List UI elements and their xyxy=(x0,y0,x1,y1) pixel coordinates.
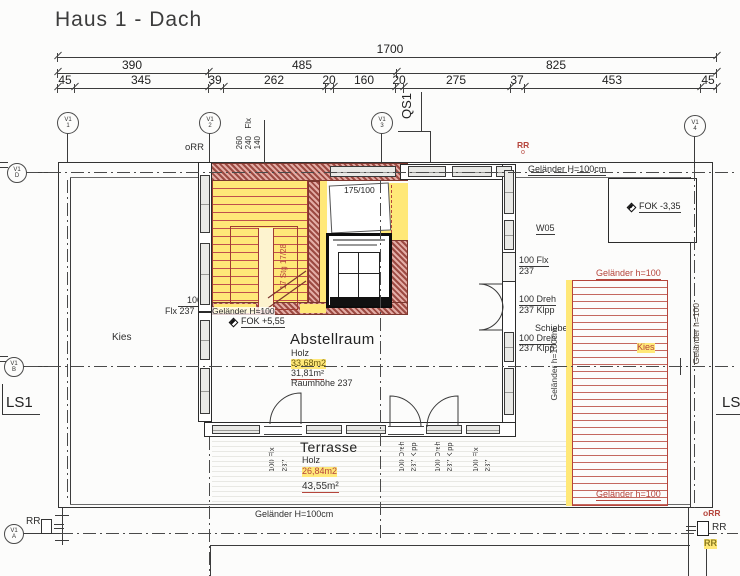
rr-bottom-right-box xyxy=(697,521,709,536)
window-w05-right-label: W05 xyxy=(536,224,555,235)
window-left-2 xyxy=(200,243,210,305)
grid-axis-1 xyxy=(67,180,68,502)
left-flx-label-2: Flx 237 xyxy=(165,307,195,317)
fok-stair-label: FOK +5,55 xyxy=(241,317,285,328)
axis-bubble-top-3: V13 xyxy=(371,112,393,134)
right-flx-label-2: 237 xyxy=(519,267,534,277)
rr-bottom-right-black-label: RR xyxy=(712,522,726,533)
section-ls1-left: LS1 xyxy=(6,395,33,412)
fok-box-label: FOK -3,35 xyxy=(639,202,681,213)
wall-hatch-stair-right xyxy=(308,181,320,312)
grid-axis-b xyxy=(25,366,738,367)
window-left-4 xyxy=(200,368,210,414)
grid-axis-2 xyxy=(209,437,210,576)
window-bottom-1 xyxy=(212,425,260,434)
dim-row3-10: 45 xyxy=(693,73,723,87)
drawing-title: Haus 1 - Dach xyxy=(55,8,202,32)
kies-left-label: Kies xyxy=(112,332,131,343)
railing-bottom-label: Geländer H=100cm xyxy=(255,510,333,520)
window-right-1 xyxy=(504,170,514,214)
dim-row3-7: 275 xyxy=(431,73,481,87)
terrace-decking xyxy=(212,437,566,505)
stair-divider xyxy=(258,228,274,310)
rr-top-center-o: o xyxy=(521,149,525,157)
door-threshold-double xyxy=(388,426,424,435)
kies-railing-left-vert-label: Geländer h=100cm xyxy=(550,328,559,401)
axis-bubble-left-d: V1D xyxy=(7,163,27,183)
rr-bottom-left-box xyxy=(41,519,52,534)
dim-row3-0: 45 xyxy=(50,73,80,87)
axis-bubble-top-1: V11 xyxy=(57,112,79,134)
floor-plan-drawing: Haus 1 - Dach 1700 390 485 825 45 345 39… xyxy=(0,0,740,576)
railing-top-right-label: Geländer H=100cm xyxy=(528,165,606,176)
dim-row3-1: 345 xyxy=(116,73,166,87)
elevator-cabin xyxy=(338,252,380,298)
window-bottom-2 xyxy=(306,425,342,434)
dim-line-row3 xyxy=(57,88,716,89)
window-bottom-4 xyxy=(426,425,462,434)
right-dreh1-label-2: 237 Klpp xyxy=(519,306,555,316)
top-vert-dim-140: 140 xyxy=(254,136,263,149)
kies-railing-top-label: Geländer h=100 xyxy=(596,269,661,280)
grid-axis-d xyxy=(25,172,738,173)
dim-row2-2: 825 xyxy=(526,58,586,72)
roof-opening-label: 175/100 xyxy=(344,186,375,195)
axis-bubble-top-4: V14 xyxy=(684,115,706,137)
dim-row3-8: 37 xyxy=(502,73,532,87)
dim-row3-2: 39 xyxy=(200,73,230,87)
axis-bubble-top-2: V12 xyxy=(199,112,221,134)
elevator-text-line2 xyxy=(337,244,377,246)
kies-right-area xyxy=(572,280,668,506)
window-right-sill xyxy=(503,252,515,282)
axis-bubble-left-b: V1B xyxy=(4,357,24,377)
room-abstellraum-name: Abstellraum xyxy=(290,332,375,349)
grid-axis-3 xyxy=(380,180,381,540)
window-left-1 xyxy=(200,175,210,233)
grid-axis-a xyxy=(60,533,738,534)
opening-dashed-edge xyxy=(391,185,392,238)
dim-row3-9: 453 xyxy=(587,73,637,87)
axis-bubble-left-a: V1A xyxy=(4,524,24,544)
dim-row2-0: 390 xyxy=(102,58,162,72)
room-terrasse-material: Holz xyxy=(302,456,320,466)
window-bottom-5 xyxy=(466,425,500,434)
rr-top-left-label: oRR xyxy=(185,143,204,153)
elevator-door-sill xyxy=(330,297,390,306)
window-right-4 xyxy=(504,368,514,415)
rr-bottom-left-label: RR xyxy=(26,516,40,527)
elevator-text-line1 xyxy=(333,239,385,241)
door-threshold-left xyxy=(264,426,302,435)
section-marker-qs1: QS1 xyxy=(400,93,414,119)
window-left-3 xyxy=(200,320,210,360)
rr-bottom-right-yellow-label: RR xyxy=(704,539,717,549)
dim-row3-4: 20 xyxy=(314,73,344,87)
section-ls1-right: LS1 xyxy=(722,395,740,412)
dim-row3-5: 160 xyxy=(349,73,379,87)
dim-row2-1: 485 xyxy=(272,58,332,72)
stair-railing-label: Geländer H=100 xyxy=(212,307,275,316)
dim-row3-6: 20 xyxy=(384,73,414,87)
kies-railing-right-vert-label: Geländer h=100 xyxy=(692,303,701,364)
room-terrasse-area-red: 43,55m² xyxy=(302,481,339,493)
kies-railing-bottom-label: Geländer h=100 xyxy=(596,490,661,501)
dim-row3-3: 262 xyxy=(249,73,299,87)
room-terrasse-name: Terrasse xyxy=(300,440,358,455)
highlight-band-mid xyxy=(300,304,326,313)
room-abstellraum-height: Raumhöhe 237 xyxy=(291,379,353,389)
top-vert-flx: Flx xyxy=(245,118,254,129)
kies-right-label: Kies xyxy=(637,343,655,353)
rr-bottom-right-red-label: oRR xyxy=(703,509,720,518)
room-terrasse-area-yellow: 26,84m2 xyxy=(302,467,337,477)
dim-total: 1700 xyxy=(360,42,420,56)
window-right-3 xyxy=(504,332,514,362)
stair-steps-label: 17 Stg 17/28 xyxy=(280,244,289,289)
window-right-2 xyxy=(504,220,514,250)
